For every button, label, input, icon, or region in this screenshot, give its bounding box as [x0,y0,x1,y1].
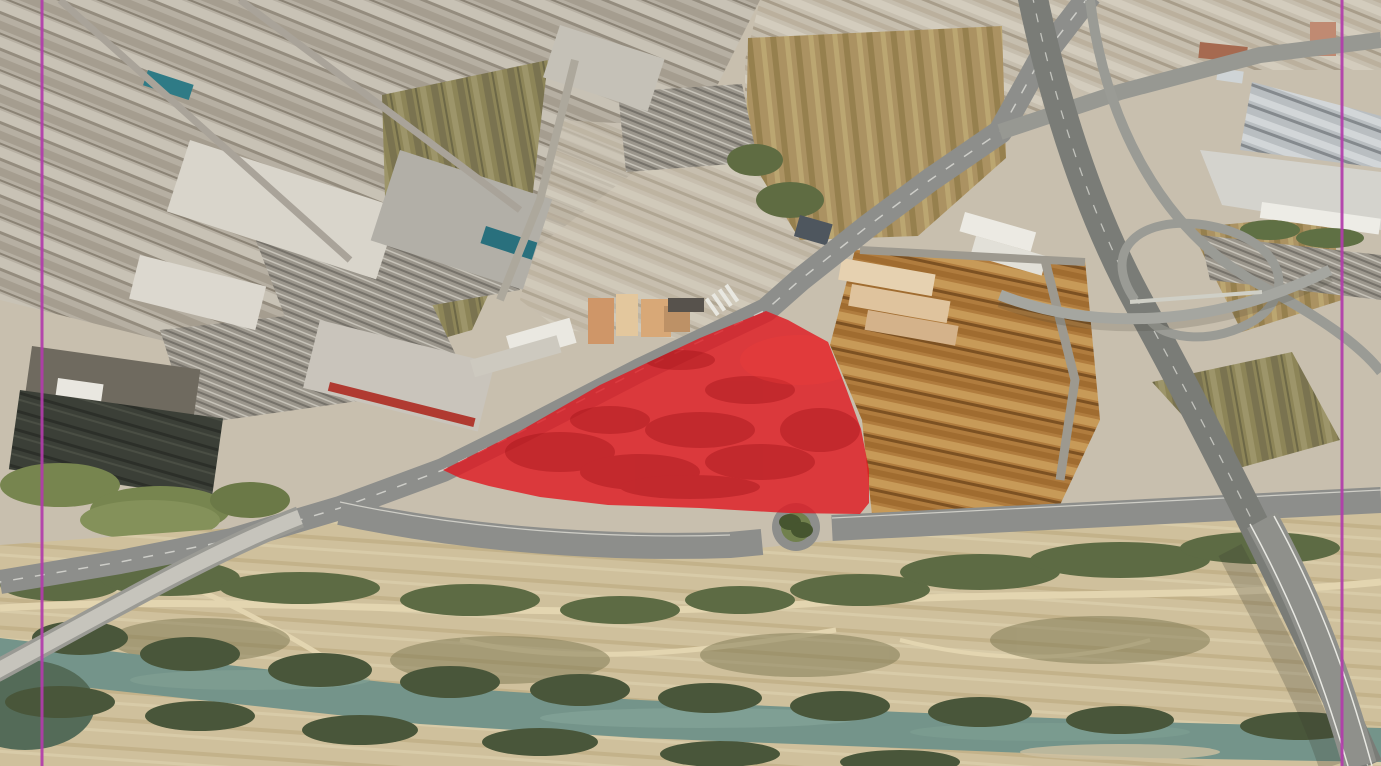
tree-cluster [268,653,372,687]
tree-cluster [482,728,598,756]
tree-cluster [530,674,630,706]
parcel-shade [645,412,755,448]
aerial-map-view[interactable] [0,0,1381,766]
tree-row [1296,228,1364,248]
apartment-tower [588,298,614,344]
tree-cluster [560,596,680,624]
satellite-scene [0,0,1381,766]
parcel-shade [705,444,815,480]
tree-cluster [210,482,290,518]
tree-cluster [1066,706,1174,734]
tree-cluster [756,182,824,218]
tree-cluster [5,686,115,718]
tree-cluster [400,666,500,698]
tree-cluster [928,697,1032,727]
tree-cluster [685,586,795,614]
tree-cluster [790,691,890,721]
tree-cluster [727,144,783,176]
scrub-patch [990,616,1210,664]
tree-cluster [400,584,540,616]
parcel-shade [570,406,650,434]
dark-flat-building [668,298,704,312]
tree-cluster [220,572,380,604]
parcel-shade [780,408,860,452]
tree-cluster [658,683,762,713]
tree-cluster [791,522,813,538]
tree-cluster [660,741,780,766]
tree-cluster [302,715,418,745]
apartment-tower [616,294,638,336]
tree-cluster [145,701,255,731]
parcel-shade [620,475,760,499]
sandbar [1020,744,1220,760]
scrub-patch [700,633,900,677]
tree-cluster [140,637,240,671]
